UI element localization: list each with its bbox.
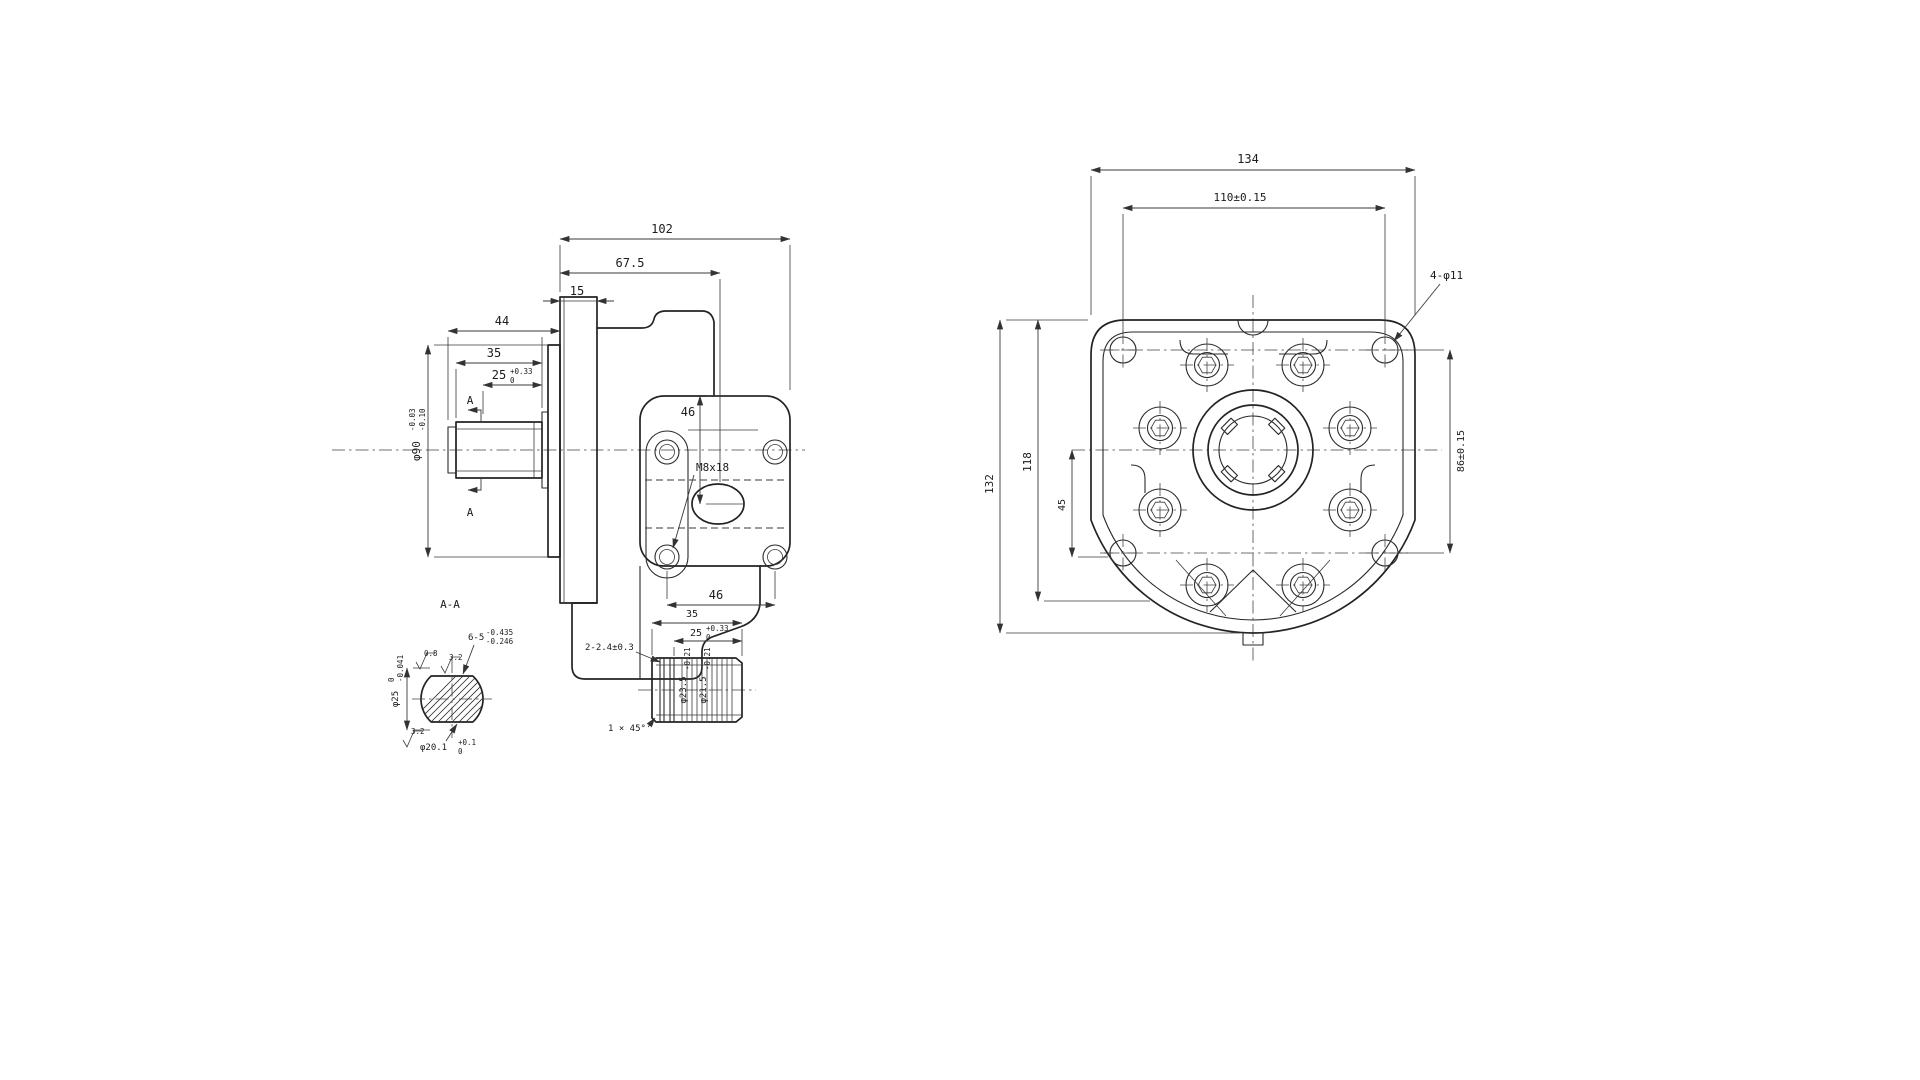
port-bolt-hole [763, 440, 787, 464]
detail-dim-25-upper-tol: +0.33 [706, 624, 729, 633]
section-aa-title: A-A [440, 598, 460, 611]
pump-body-profile [572, 311, 760, 679]
dim-118: 118 [1021, 452, 1034, 472]
cover-screw [1133, 401, 1187, 455]
port-bolt-hole [655, 440, 679, 464]
detail-dia-major: φ23.5 [679, 676, 689, 703]
dim-dia90-base: φ90 [410, 441, 423, 461]
mount-hole-bottom-left [1104, 534, 1142, 572]
holes-callout-4-dia11: 4-φ11 [1430, 269, 1463, 282]
dim-132: 132 [983, 474, 996, 494]
drawing-canvas: A A [0, 0, 1920, 1080]
dim-35: 35 [487, 346, 501, 360]
dim-dia25-base: φ25 [391, 691, 401, 707]
cover-screw [1323, 483, 1377, 537]
cover-screw [1276, 338, 1330, 392]
dim-44: 44 [495, 314, 509, 328]
cover-screw [1180, 338, 1234, 392]
chamfer-callout: 1 × 45° [608, 724, 646, 734]
port-bolt-hole [763, 545, 787, 569]
dim-25-lower-tol: 0 [510, 376, 515, 385]
pocket-contour [1180, 340, 1327, 354]
section-aa-view: A-A 6-5 -0.435 -0.246 0.8 3.2 3.2 φ25 [384, 598, 558, 756]
pilot-boss [548, 345, 560, 557]
dim-110: 110±0.15 [1214, 191, 1267, 204]
port-face-inner-contour [646, 431, 688, 578]
port-flange-face [640, 396, 790, 578]
thread-callout-m8x18: M8x18 [696, 461, 729, 474]
cover-screw [1133, 483, 1187, 537]
spline-width-lower-tol: -0.246 [486, 637, 514, 646]
side-view-dimensions: 102 67.5 15 44 35 25 +0.33 0 [408, 222, 790, 605]
detail-dim-35: 35 [686, 609, 698, 620]
section-cut-marks: A A [467, 394, 481, 519]
dim-dia90-upper-tol: -0.03 [408, 408, 417, 431]
detail-dim-25-lower-tol: 0 [706, 633, 711, 642]
dim-flats-upper-tol: +0.1 [458, 738, 476, 747]
shaft-spline-detail: 35 25 +0.33 0 2-2.4±0.3 φ23.5 -0.21 φ21.… [585, 609, 756, 734]
dim-dia25-upper-tol: 0 [387, 677, 396, 682]
dim-67-5: 67.5 [616, 256, 645, 270]
dim-45: 45 [1057, 499, 1068, 511]
mount-hole-top-left [1104, 331, 1142, 369]
dim-dia90-lower-tol: -0.10 [418, 408, 427, 431]
finish-value-0-8: 0.8 [424, 649, 438, 658]
mount-hole-top-right [1366, 331, 1404, 369]
dim-46-vertical: 46 [681, 405, 695, 419]
dim-flats-base: φ20.1 [420, 743, 447, 753]
cover-screw [1323, 401, 1377, 455]
finish-value-3-2-bottom: 3.2 [411, 727, 425, 736]
mount-hole-bottom-right [1366, 534, 1404, 572]
section-mark-a-top: A [467, 394, 474, 407]
detail-dia-minor-tol: -0.21 [703, 647, 712, 670]
side-view: A A [332, 222, 805, 679]
cover-screw [1180, 558, 1234, 612]
dim-dia25-lower-tol: -0.041 [396, 655, 405, 682]
dim-46-horizontal: 46 [709, 588, 723, 602]
section-mark-a-bottom: A [467, 506, 474, 519]
dim-15: 15 [570, 284, 584, 298]
dim-flats-lower-tol: 0 [458, 747, 463, 756]
dim-25-base: 25 [492, 368, 506, 382]
finish-value-3-2-top: 3.2 [449, 653, 463, 662]
detail-dia-major-tol: -0.21 [683, 647, 692, 670]
spline-width-callout: 6-5 [468, 633, 484, 643]
detail-dim-25-base: 25 [690, 628, 702, 639]
gear-pump-engineering-drawing: A A [0, 0, 1920, 1080]
detail-dia-minor: φ21.5 [699, 676, 709, 703]
dim-102: 102 [651, 222, 673, 236]
spline-width-upper-tol: -0.435 [486, 628, 513, 637]
dim-134: 134 [1237, 152, 1259, 166]
surface-finish-mark: 0.8 [416, 649, 438, 669]
dim-25-upper-tol: +0.33 [510, 367, 533, 376]
dim-86: 86±0.15 [1456, 430, 1467, 472]
groove-callout: 2-2.4±0.3 [585, 643, 634, 653]
front-view: 134 110±0.15 4-φ11 132 118 45 [983, 152, 1467, 662]
